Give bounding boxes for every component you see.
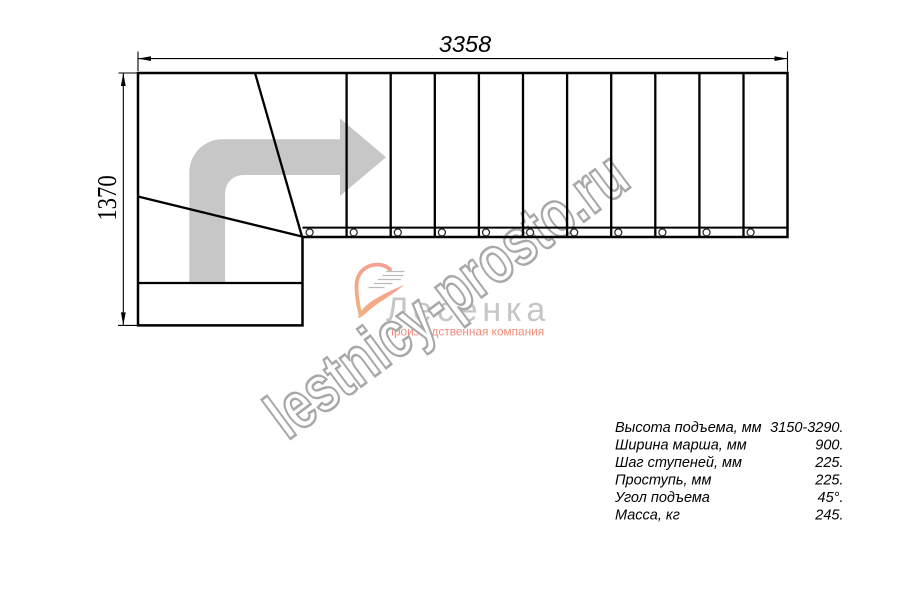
svg-text:Проступь, мм: Проступь, мм xyxy=(615,473,711,489)
svg-text:1370: 1370 xyxy=(93,175,122,220)
svg-text:245.: 245. xyxy=(814,508,843,524)
svg-text:45°.: 45°. xyxy=(818,490,844,506)
svg-text:Масса, кг: Масса, кг xyxy=(615,508,680,524)
svg-text:3358: 3358 xyxy=(439,31,491,57)
svg-text:Шаг ступеней, мм: Шаг ступеней, мм xyxy=(615,455,742,471)
svg-text:900.: 900. xyxy=(815,438,843,454)
svg-text:Высота подъема, мм: Высота подъема, мм xyxy=(615,420,762,436)
svg-text:Ширина марша, мм: Ширина марша, мм xyxy=(615,438,747,454)
svg-text:lestnicy-prosto.ru: lestnicy-prosto.ru xyxy=(252,137,642,453)
svg-text:225.: 225. xyxy=(814,473,843,489)
svg-text:225.: 225. xyxy=(814,455,843,471)
svg-text:Угол подъема: Угол подъема xyxy=(614,490,710,506)
svg-text:3150-3290.: 3150-3290. xyxy=(770,420,843,436)
